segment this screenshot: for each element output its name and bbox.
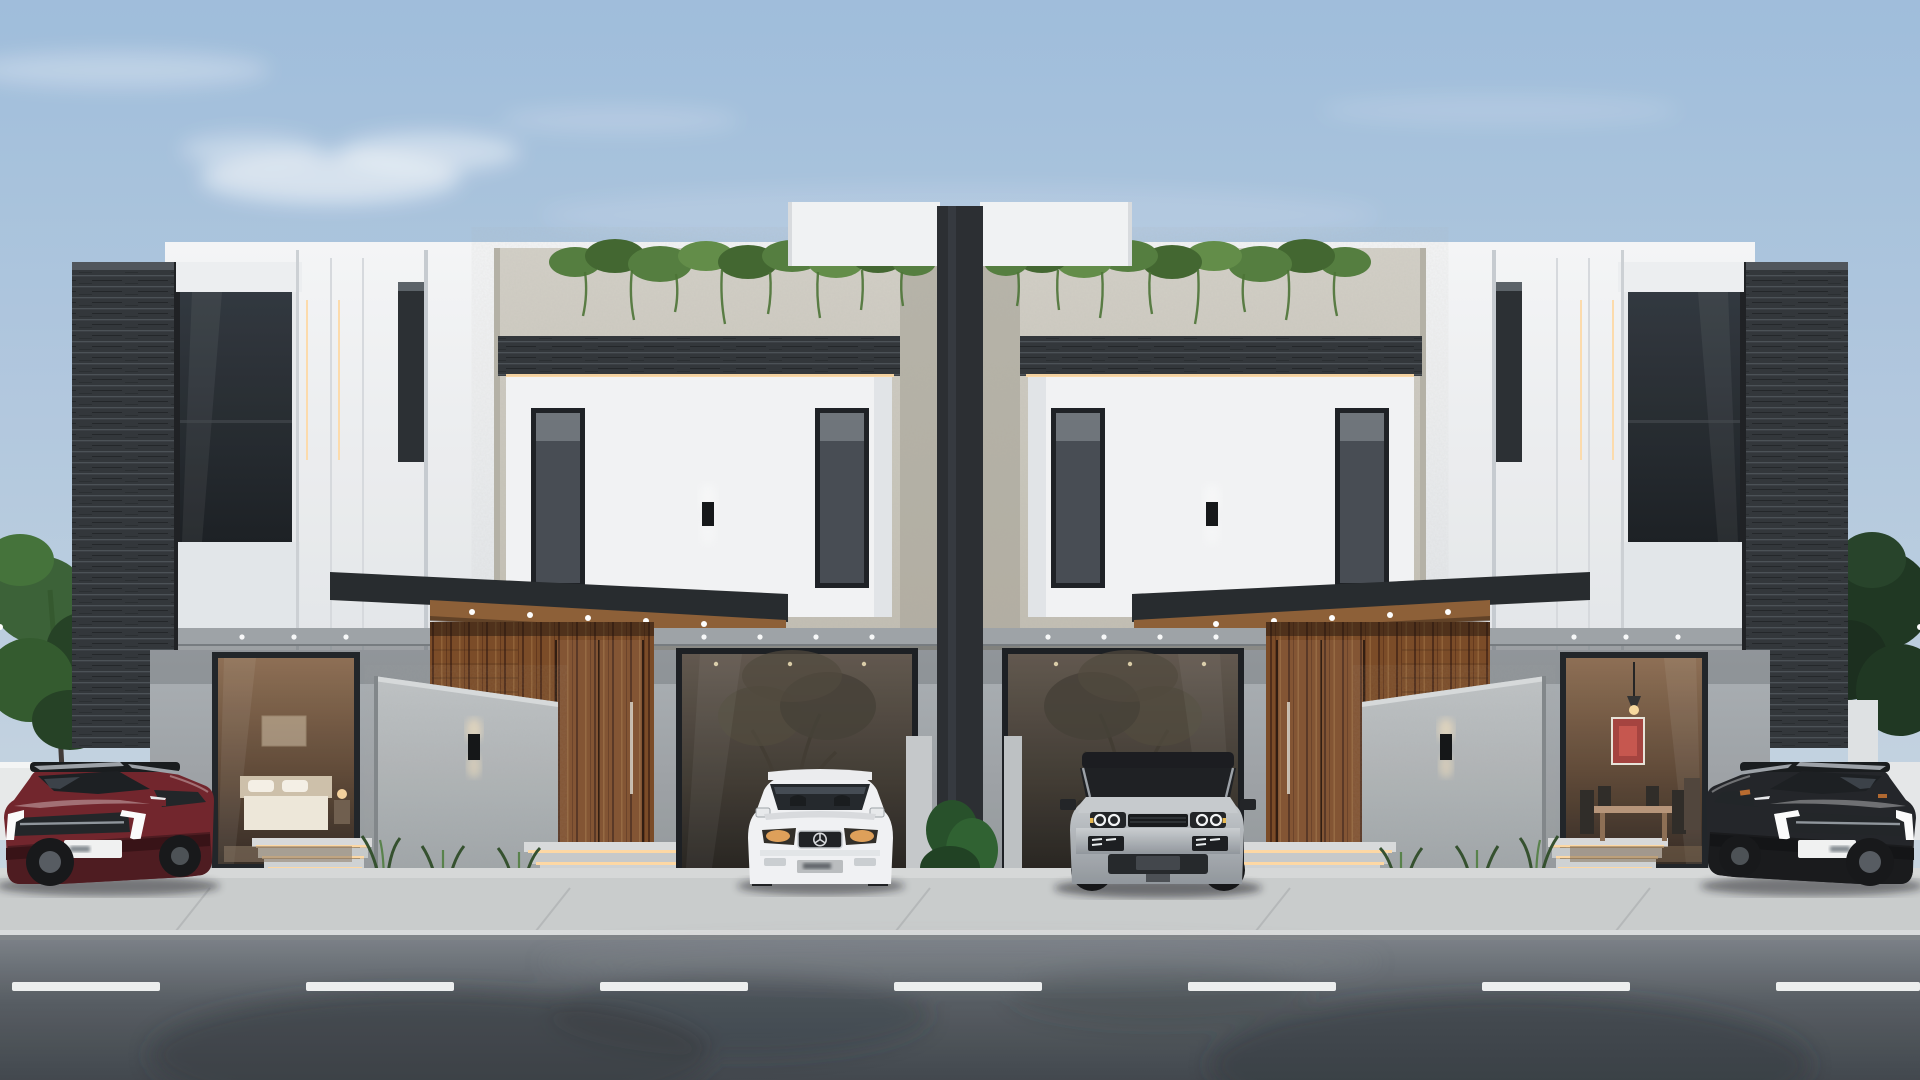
- rendered-photo: [0, 0, 1920, 1080]
- scene-svg: [0, 0, 1920, 1080]
- haze-overlay: [0, 0, 1920, 1080]
